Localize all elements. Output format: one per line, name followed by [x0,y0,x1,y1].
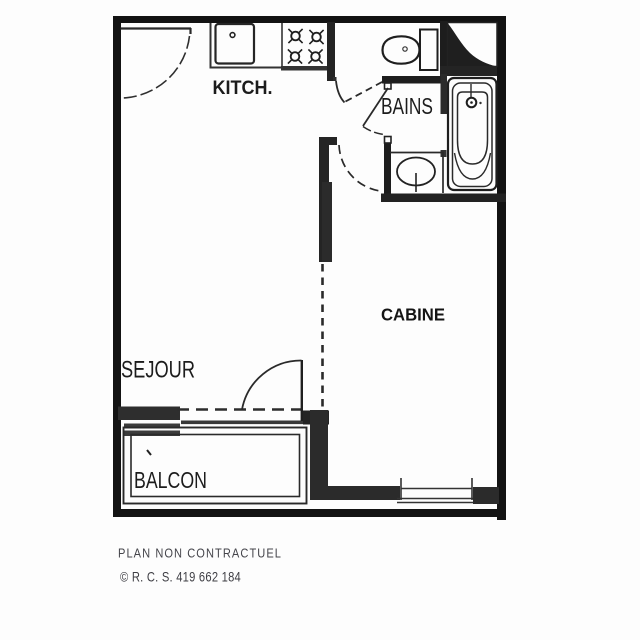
svg-text:PLAN NON CONTRACTUEL: PLAN NON CONTRACTUEL [118,547,282,561]
svg-text:SEJOUR: SEJOUR [121,357,195,384]
svg-text:BAINS: BAINS [381,93,433,119]
svg-text:© R. C. S. 419 662 184: © R. C. S. 419 662 184 [120,569,241,585]
svg-text:BALCON: BALCON [134,467,207,493]
svg-text:CABINE: CABINE [381,305,445,325]
svg-text:KITCH.: KITCH. [213,77,273,99]
